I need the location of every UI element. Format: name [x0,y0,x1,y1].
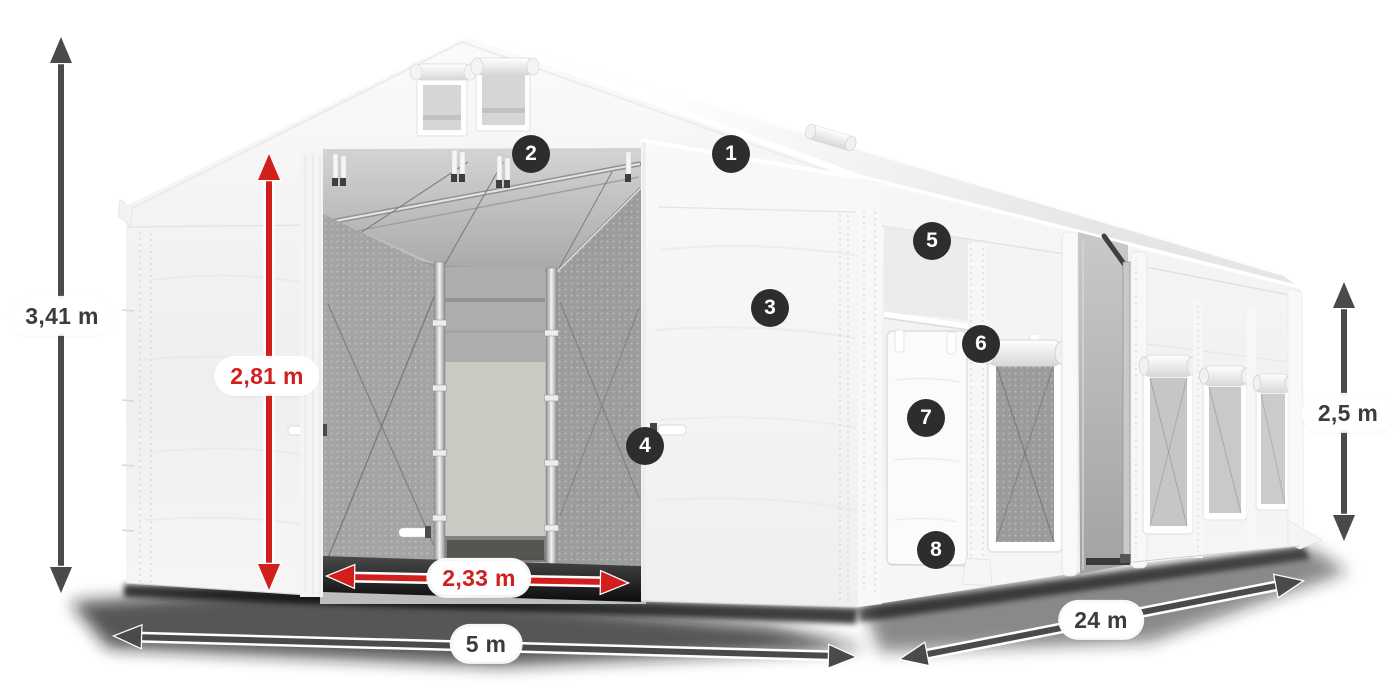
interior-pole [433,262,447,593]
callout-badge-2[interactable]: 2 [512,135,550,173]
callout-badge-7[interactable]: 7 [907,399,945,437]
tent-dimension-diagram: 3,41 m 2,81 m 2,33 m 5 m 24 m 2,5 m 1 2 … [0,0,1400,700]
dimension-entrance-height-label: 2,81 m [217,359,316,393]
callout-badge-4[interactable]: 4 [626,427,664,465]
side-window-far-1 [1139,355,1197,534]
dimension-length-label: 24 m [1061,603,1141,637]
interior-pole [545,268,559,599]
side-corner-band [858,178,882,607]
gable-vent-2 [471,58,539,131]
callout-badge-3[interactable]: 3 [751,289,789,327]
dimension-side-height-label: 2,5 m [1305,396,1391,430]
callout-badge-1[interactable]: 1 [712,135,750,173]
dimension-total-height-label: 3,41 m [12,299,111,333]
side-door [887,330,967,566]
gable-vent-1 [410,64,476,136]
tent-interior [320,146,646,604]
callout-badge-6[interactable]: 6 [962,325,1000,363]
dimension-width-label: 5 m [453,627,520,661]
tent-illustration [0,0,1400,700]
side-window-far-2 [1200,366,1251,520]
callout-badge-5[interactable]: 5 [913,222,951,260]
side-window-far-3 [1253,374,1293,510]
front-right-door [641,140,858,607]
far-door-latch [399,526,431,538]
callout-badge-8[interactable]: 8 [917,531,955,569]
side-open-gap [1078,232,1138,574]
far-open-door [445,362,546,548]
side-window-near [983,334,1067,552]
dimension-entrance-width-label: 2,33 m [429,561,528,595]
